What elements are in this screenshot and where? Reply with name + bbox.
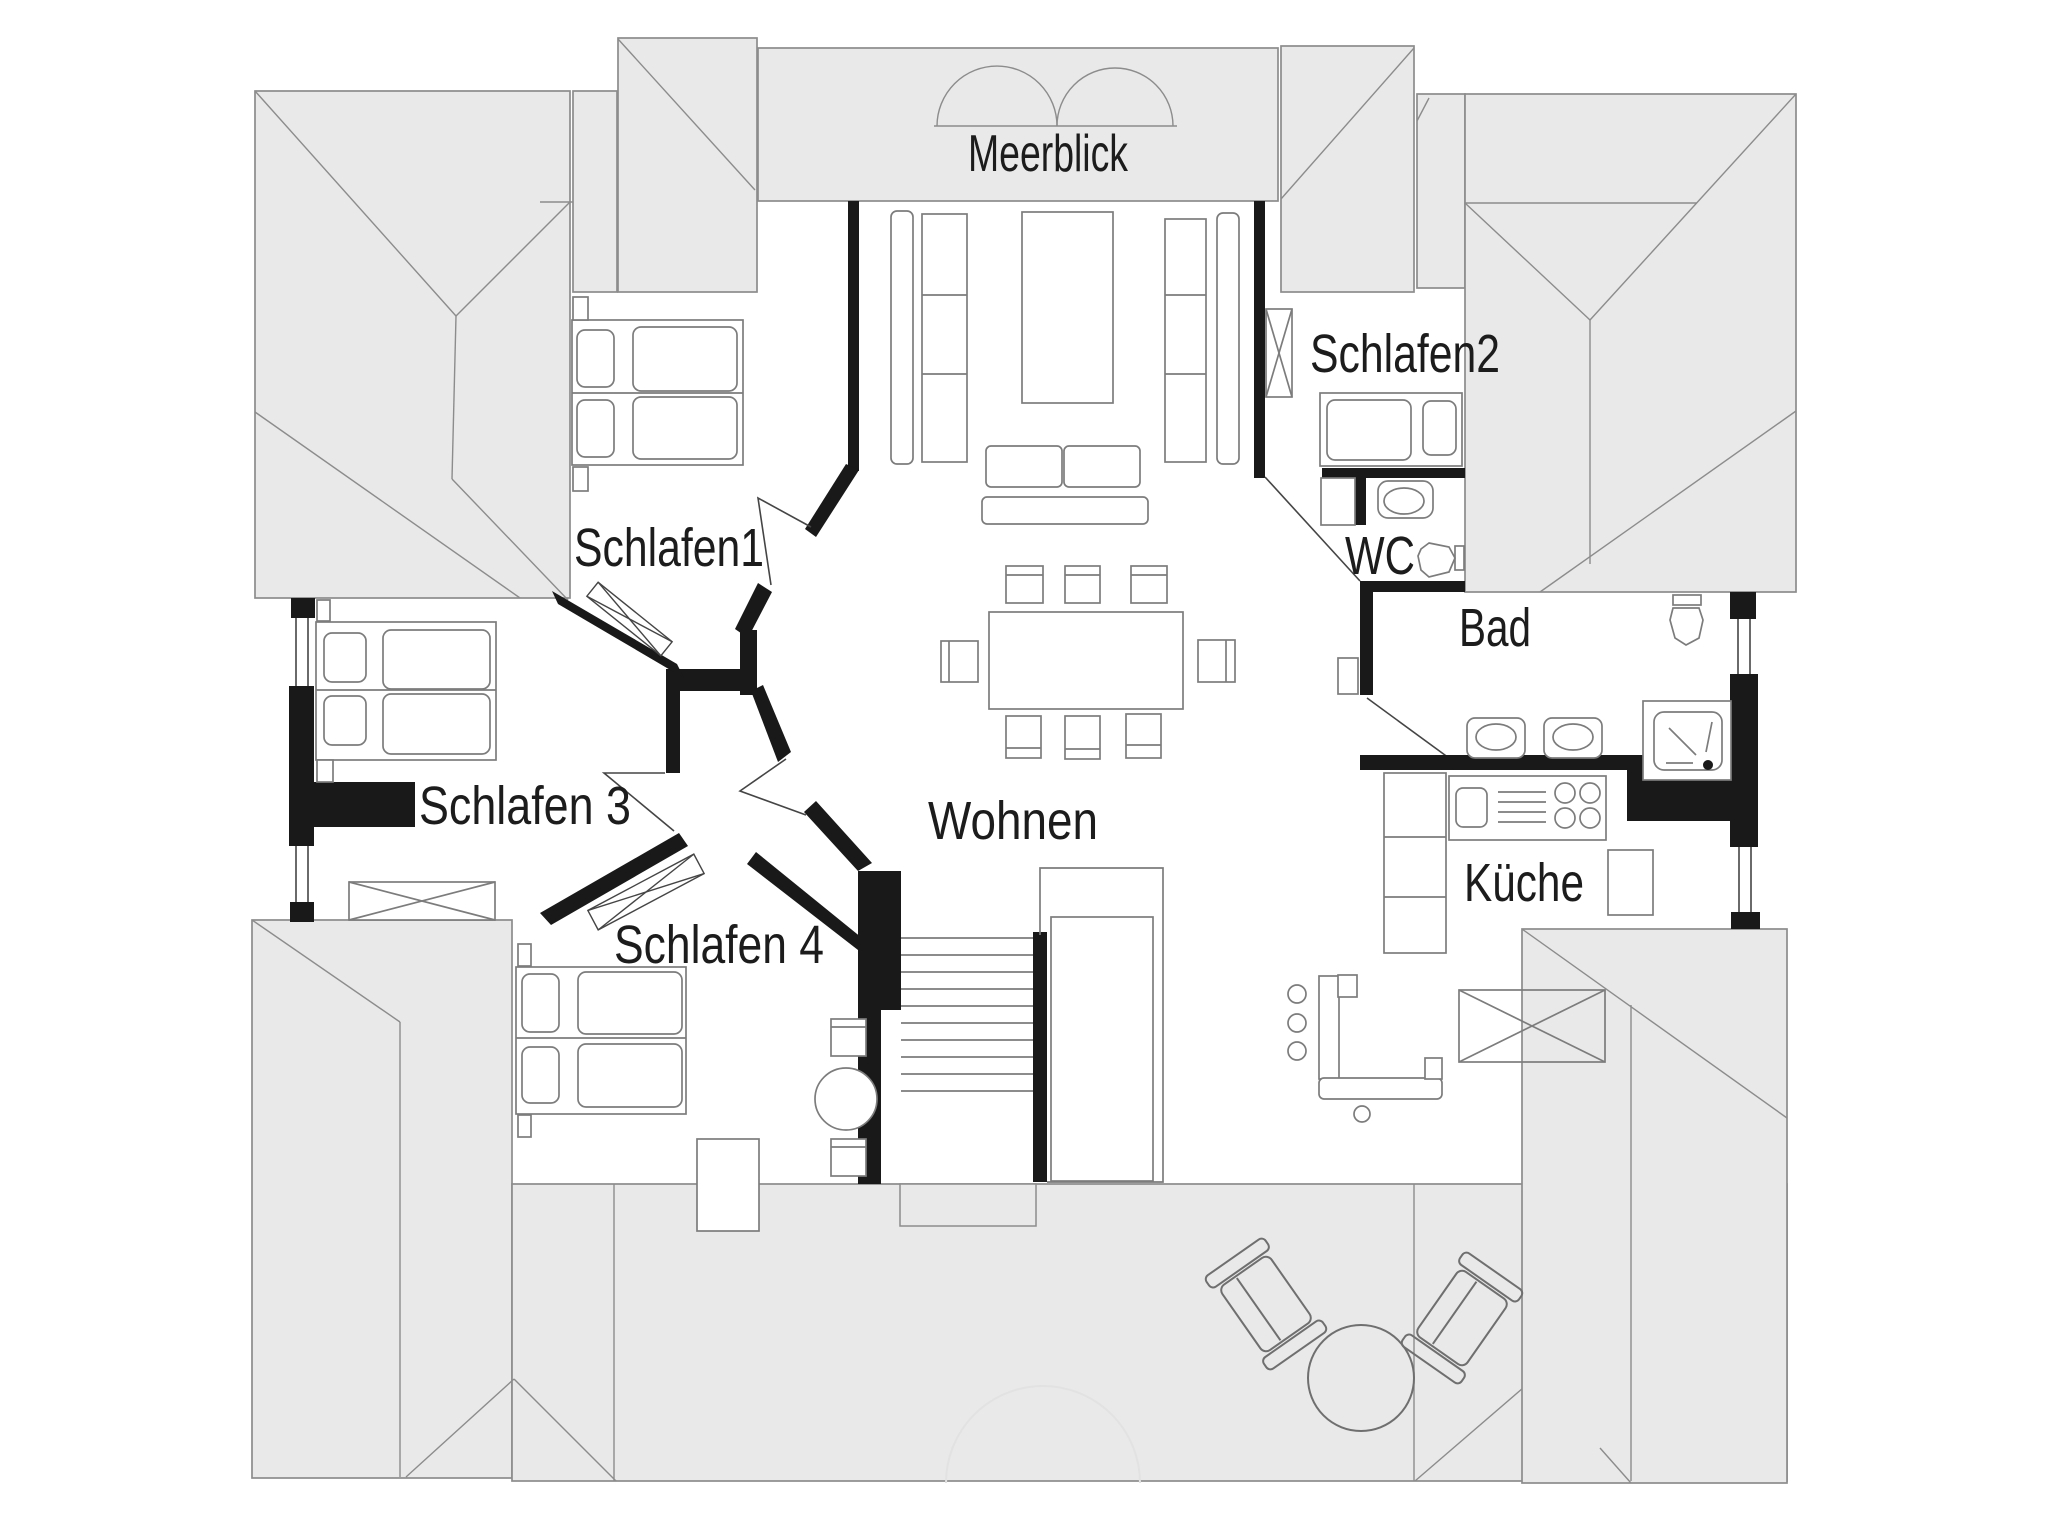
svg-text:Schlafen 3: Schlafen 3 (419, 776, 631, 836)
svg-text:Schlafen1: Schlafen1 (574, 518, 764, 578)
svg-text:Meerblick: Meerblick (968, 125, 1129, 183)
svg-text:Schlafen 4: Schlafen 4 (614, 915, 824, 975)
svg-text:Schlafen2: Schlafen2 (1310, 324, 1500, 384)
svg-text:Wohnen: Wohnen (928, 791, 1098, 851)
svg-text:WC: WC (1345, 526, 1415, 586)
svg-text:Bad: Bad (1459, 598, 1531, 658)
svg-text:Küche: Küche (1464, 853, 1584, 913)
